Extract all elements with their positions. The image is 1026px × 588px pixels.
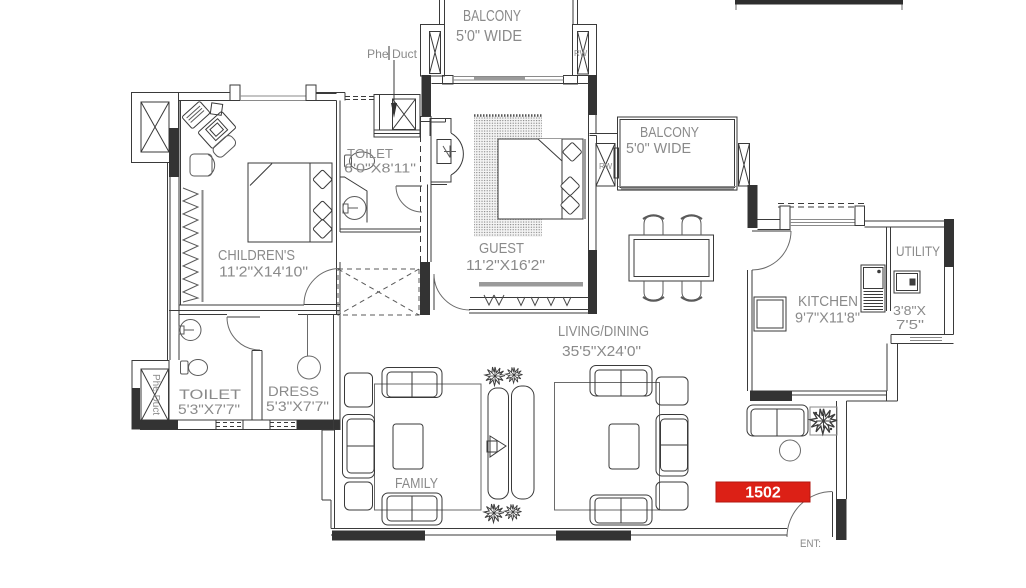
svg-text:DRESS: DRESS bbox=[268, 384, 319, 399]
svg-text:FAMILY: FAMILY bbox=[395, 475, 438, 492]
svg-text:35'5"X24'0": 35'5"X24'0" bbox=[562, 343, 641, 360]
svg-text:KITCHEN: KITCHEN bbox=[798, 293, 858, 310]
svg-text:UTILITY: UTILITY bbox=[896, 243, 941, 259]
svg-text:5'0" WIDE: 5'0" WIDE bbox=[456, 28, 522, 45]
svg-text:5'3"X7'7": 5'3"X7'7" bbox=[178, 402, 240, 417]
svg-text:9'7"X11'8": 9'7"X11'8" bbox=[795, 310, 860, 327]
svg-text:ENT:: ENT: bbox=[800, 538, 821, 550]
svg-text:LIVING/DINING: LIVING/DINING bbox=[558, 323, 649, 340]
svg-text:BALCONY: BALCONY bbox=[463, 8, 521, 25]
svg-text:5'3"X7'7": 5'3"X7'7" bbox=[266, 399, 329, 414]
svg-text:Phe Duct: Phe Duct bbox=[150, 374, 161, 415]
svg-text:1502: 1502 bbox=[745, 485, 781, 502]
svg-text:GUEST: GUEST bbox=[479, 240, 524, 257]
svg-text:7'5": 7'5" bbox=[896, 317, 924, 332]
svg-text:CHILDREN'S: CHILDREN'S bbox=[218, 247, 295, 264]
svg-text:5'0" WIDE: 5'0" WIDE bbox=[626, 140, 691, 157]
svg-text:3'8"X: 3'8"X bbox=[893, 303, 926, 318]
svg-text:11'2"X14'10": 11'2"X14'10" bbox=[219, 264, 308, 281]
svg-text:RW: RW bbox=[599, 162, 613, 171]
svg-text:BALCONY: BALCONY bbox=[640, 124, 699, 141]
svg-text:6'0"X8'11": 6'0"X8'11" bbox=[344, 161, 416, 176]
svg-text:TOILET: TOILET bbox=[347, 146, 393, 161]
svg-text:TOILET: TOILET bbox=[179, 387, 241, 402]
svg-text:11'2"X16'2": 11'2"X16'2" bbox=[466, 257, 545, 274]
svg-text:RW: RW bbox=[574, 49, 588, 58]
svg-text:Phe Duct: Phe Duct bbox=[367, 47, 418, 61]
